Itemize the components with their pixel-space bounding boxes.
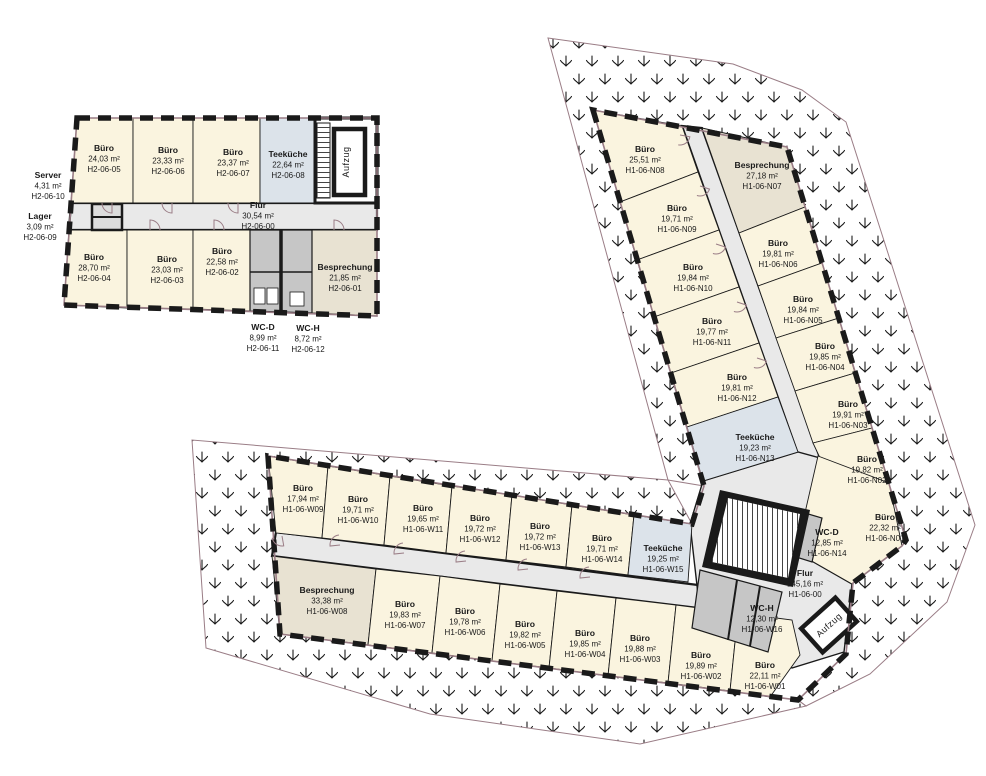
label-H2-06-08: Teeküche22,64 m²H2-06-08: [268, 149, 307, 180]
label-H2-06-09: Lager3,09 m²H2-06-09: [23, 211, 57, 242]
room-H1-06-W13: [506, 495, 572, 567]
room-H1-06-W12: [446, 486, 512, 560]
label-H2-06-10: Server4,31 m²H2-06-10: [31, 170, 65, 201]
server-lager-nook: [92, 204, 122, 230]
elevator-h2: Aufzug: [334, 129, 365, 195]
label-H2-06-11: WC-D8,99 m²H2-06-11: [247, 322, 280, 353]
wc-block-h2: [250, 230, 312, 313]
label-H1-06-W15: Teeküche19,25 m²H1-06-W15: [643, 543, 684, 574]
stairwell-h2: Aufzug: [315, 118, 377, 203]
floor-plan-drawing: Aufzug: [0, 0, 986, 776]
label-H1-06-N13: Teeküche19,23 m²H1-06-N13: [735, 432, 775, 463]
label-H2-06-12: WC-H8,72 m²H2-06-12: [291, 323, 325, 354]
floor-plan-page: Aufzug: [0, 0, 986, 776]
elevator-h2-label: Aufzug: [341, 146, 351, 177]
